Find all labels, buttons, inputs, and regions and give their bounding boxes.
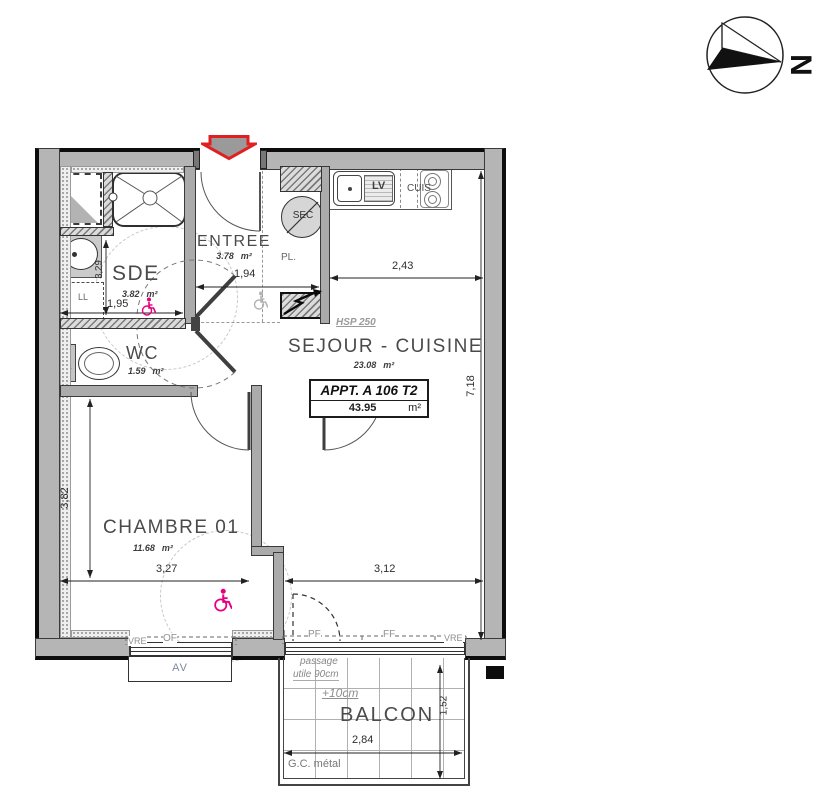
wall-closet-top (280, 166, 322, 192)
window-sejour (285, 642, 465, 655)
entrance-arrow (201, 134, 257, 161)
wc-area-value: 1.59 (128, 366, 146, 376)
wall-bottom-left (35, 638, 130, 660)
wall-wc-bottom (60, 385, 198, 397)
wall-sde-wc (60, 318, 186, 329)
window-chambre-type-label: OF (163, 633, 177, 644)
sejour-ceiling-note: HSP 250 (336, 317, 376, 328)
chambre-name: CHAMBRE 01 (103, 517, 239, 539)
washbasin-drain (72, 252, 77, 257)
sejour-area-value: 23.08 (354, 360, 377, 370)
insulation-left (60, 166, 71, 638)
dim-balcon-width: 2,84 (352, 734, 373, 746)
chambre-area-unit: m² (162, 543, 173, 553)
wall-shower-closet (103, 172, 113, 227)
wall-sde-entree (184, 166, 196, 324)
window-sill-label: AV (128, 662, 232, 674)
dim-sde-width: 1,95 (107, 298, 128, 310)
north-label: N (783, 54, 817, 76)
entree-name: ENTREE (196, 233, 272, 251)
apartment-title: APPT. A 106 T2 (311, 381, 427, 401)
wall-below-closet (60, 227, 114, 236)
dim-sejour-width: 3,12 (374, 563, 395, 575)
wheelchair-icon-sde (140, 297, 156, 316)
dishwasher-label: LV (372, 180, 385, 192)
wc-area-unit: m² (153, 366, 164, 376)
wall-chambre-right (251, 385, 262, 552)
dim-chambre-width: 3,27 (156, 563, 177, 575)
balcon-name: BALCON (340, 704, 434, 727)
shower-tray (112, 172, 186, 227)
sde-name: SDE (112, 262, 160, 286)
window-sejour-shutter-label: VRE (444, 633, 463, 643)
wc-area: 1.59m² (128, 366, 164, 376)
apartment-box: APPT. A 106 T2 43.95m² (309, 379, 429, 418)
balcony-corner-block (486, 666, 504, 679)
window-sejour-door-label: PF (308, 629, 321, 640)
dryer-label: SEC (282, 210, 324, 221)
dim-right-height: 7,18 (465, 371, 477, 401)
dim-kitchen-width: 2,43 (392, 260, 413, 272)
insulation-top-left (71, 166, 184, 173)
wall-bottom-mid (232, 638, 285, 660)
wall-chambre-right-low (273, 552, 284, 640)
cooktop-label: CUIS (407, 183, 431, 194)
wall-right (484, 148, 506, 660)
wheelchair-icon-chambre (212, 588, 232, 612)
sejour-name: SEJOUR - CUISINE (288, 336, 460, 358)
entree-area-value: 3.78 (216, 251, 234, 261)
apartment-area-unit: m² (408, 402, 421, 414)
chambre-area: 11.68m² (133, 543, 173, 553)
insulation-bottom-1 (71, 630, 130, 638)
chambre-area-value: 11.68 (133, 543, 155, 553)
wall-bottom-right (465, 638, 506, 660)
entree-area-unit: m² (241, 251, 252, 261)
dim-balcon-depth: 1,52 (439, 692, 450, 720)
wall-left (35, 148, 60, 660)
washer-label: LL (78, 292, 88, 302)
floor-plan: LL + + LV CUIS SEC PL. (0, 0, 831, 800)
balcony-level-offset: +10cm (322, 686, 358, 700)
entrance-jamb-right (260, 150, 267, 169)
wheelchair-icon-hall (252, 291, 268, 310)
dim-chambre-height: 3,82 (59, 483, 71, 513)
counter-divider-1 (400, 168, 401, 208)
wc-name: WC (126, 343, 159, 364)
dim-entree-width: 1,94 (234, 268, 255, 280)
sejour-area: 23.08m² (288, 360, 460, 370)
balcony-passage-line1: passage (300, 656, 338, 667)
sejour-area-unit: m² (383, 360, 394, 370)
balcony-railing-label: G.C. métal (288, 758, 341, 770)
cooktop-burner-2-inner (428, 195, 437, 204)
window-sejour-fixed-label: FF (383, 629, 395, 640)
dim-sde-height: 3,29 (94, 255, 105, 285)
guide-dashed-horizontal (196, 322, 280, 323)
closet-label: PL. (281, 252, 296, 263)
window-chambre-shutter-label: VRE (128, 636, 147, 646)
kitchen-sink-drain (348, 187, 352, 191)
apartment-area-value: 43.95 (317, 402, 408, 414)
toilet-bowl-inner (84, 352, 114, 375)
balcony-passage-line2: utile 90cm (293, 669, 339, 681)
sde-area-unit: m² (147, 289, 158, 299)
entree-area: 3.78m² (196, 251, 272, 261)
